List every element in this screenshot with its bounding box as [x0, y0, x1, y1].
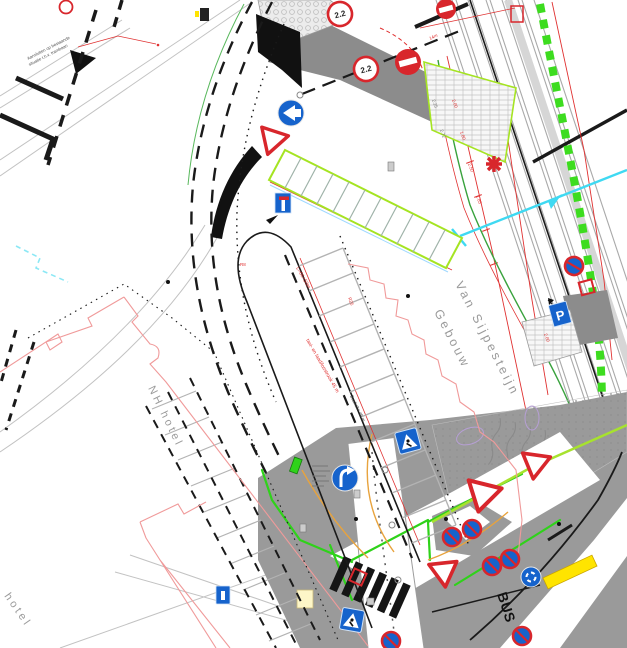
- utility-box: [200, 8, 209, 21]
- sign-no-stopping-1: [563, 255, 585, 277]
- sign-no-stopping-2: [443, 528, 461, 546]
- wall-b: [0, 115, 53, 160]
- nh-hotel-label: NH hotel: [145, 384, 185, 449]
- van-sijpesteijn-label-1: Van Sijpesteijn: [452, 279, 522, 398]
- bus-stop-note: Bushalte 45 m: [349, 394, 366, 422]
- svg-text:1.85: 1.85: [475, 195, 483, 205]
- sign-no-stopping-4: [483, 557, 501, 575]
- sign-no-stopping-3: [463, 520, 481, 538]
- hotel-lower-wing: [140, 502, 230, 648]
- nh-hotel-top-edge: [0, 297, 124, 372]
- cyan-dashed-spur: [16, 246, 68, 282]
- sign-ring-topleft: [60, 1, 73, 14]
- svg-text:R25: R25: [347, 297, 355, 307]
- direction-arrow-icon: [266, 215, 278, 224]
- sign-no-stopping-6: [513, 627, 531, 645]
- plan-canvas: 2.2 2.2 P: [0, 0, 627, 648]
- cad-site-plan: 2.2 2.2 P: [0, 0, 627, 648]
- utility-box-marker: [195, 11, 199, 17]
- parking-strip-upper: [424, 62, 516, 162]
- sign-dead-end: [266, 193, 291, 224]
- sign-mandatory-right-curve: [332, 465, 358, 491]
- sign-no-entry: [395, 49, 421, 75]
- sign-no-stopping-7: [382, 632, 400, 648]
- lane-dashes-left-a: [48, 10, 96, 165]
- sign-no-stopping-5: [501, 550, 519, 568]
- lane-dashes-left-b: [112, 0, 122, 34]
- bottom-junction: [258, 390, 627, 648]
- curved-road-arrow: [211, 146, 262, 239]
- svg-text:R8: R8: [240, 262, 246, 267]
- wall-a: [16, 78, 63, 99]
- van-sijpesteijn-label-2: Gebouw: [431, 307, 473, 371]
- red-length-note: L=66+50m: [294, 266, 311, 290]
- sign-mandatory-left: [278, 100, 304, 126]
- sign-crossing-2: [339, 607, 364, 632]
- sign-roundabout: [521, 567, 541, 587]
- symbol-red-star: [486, 156, 502, 172]
- sign-crossing-3: [216, 586, 230, 604]
- hotel-label: hotel: [2, 591, 34, 630]
